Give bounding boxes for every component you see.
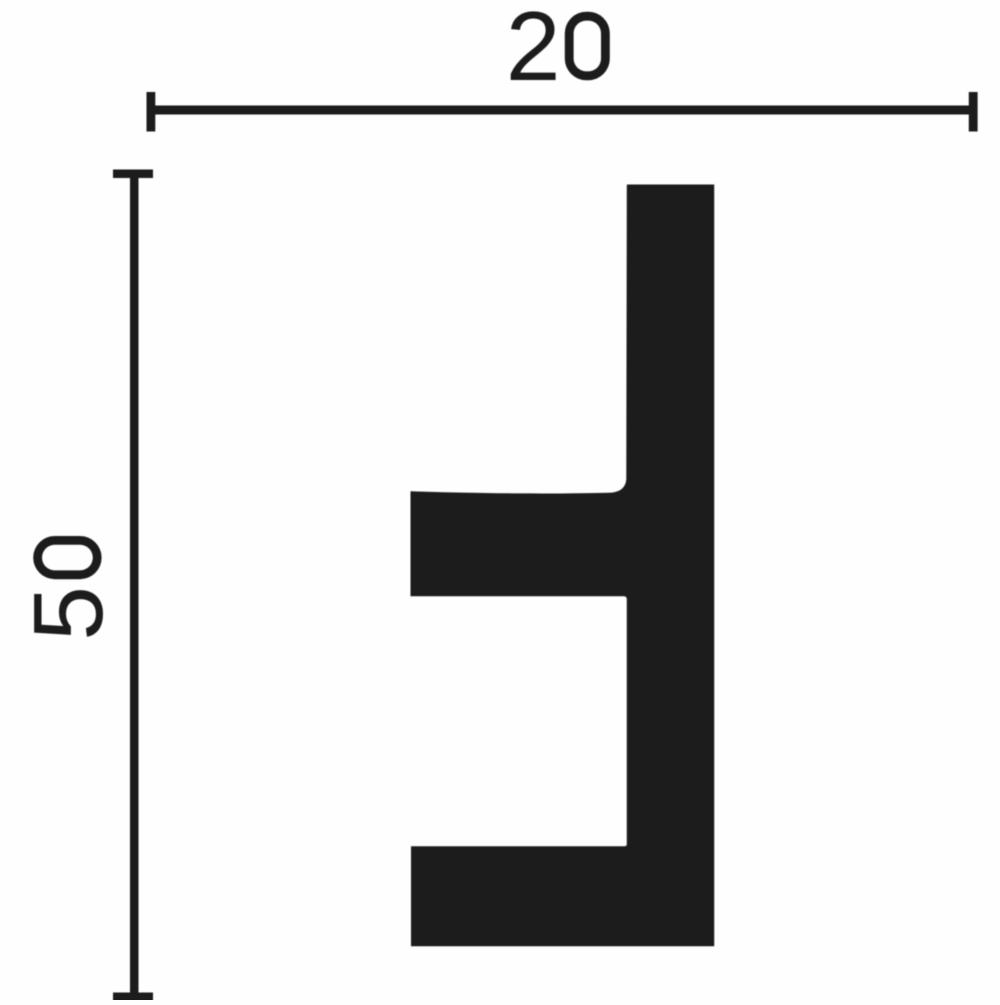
svg-text:2: 2: [506, 0, 561, 101]
svg-text:5: 5: [13, 586, 123, 641]
